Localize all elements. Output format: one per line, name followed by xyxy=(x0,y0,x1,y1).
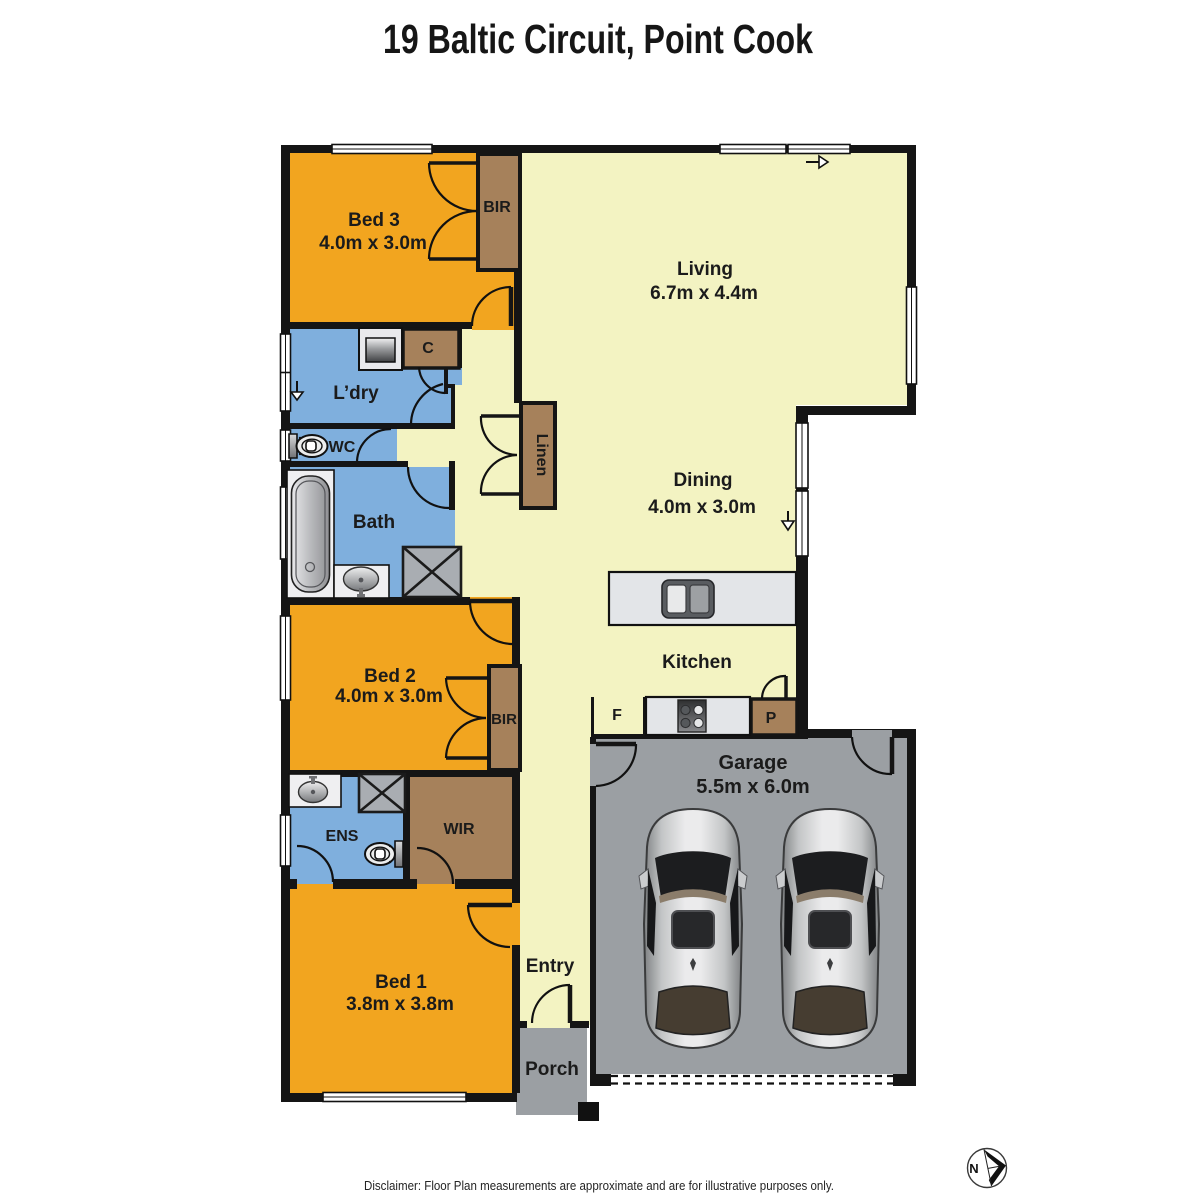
svg-text:Bath: Bath xyxy=(353,512,395,533)
svg-text:C: C xyxy=(422,340,434,357)
svg-text:Entry: Entry xyxy=(526,956,575,977)
svg-text:Linen: Linen xyxy=(533,434,550,477)
svg-text:N: N xyxy=(969,1161,978,1176)
svg-text:Bed 1: Bed 1 xyxy=(375,972,427,993)
svg-text:Dining: Dining xyxy=(673,470,732,491)
svg-text:Garage: Garage xyxy=(719,752,788,774)
svg-text:Kitchen: Kitchen xyxy=(662,652,732,673)
svg-text:ENS: ENS xyxy=(326,828,359,845)
svg-text:4.0m x 3.0m: 4.0m x 3.0m xyxy=(335,686,443,707)
svg-text:6.7m x 4.4m: 6.7m x 4.4m xyxy=(650,283,758,304)
svg-text:L’dry: L’dry xyxy=(333,383,379,404)
svg-text:5.5m x 6.0m: 5.5m x 6.0m xyxy=(696,776,809,798)
svg-text:WC: WC xyxy=(329,439,356,456)
svg-text:WIR: WIR xyxy=(443,821,475,838)
svg-text:3.8m x 3.8m: 3.8m x 3.8m xyxy=(346,994,454,1015)
svg-text:BIR: BIR xyxy=(483,199,511,216)
svg-text:Bed 2: Bed 2 xyxy=(364,666,416,687)
svg-text:4.0m x 3.0m: 4.0m x 3.0m xyxy=(648,497,756,518)
svg-text:Disclaimer: Floor Plan measure: Disclaimer: Floor Plan measurements are … xyxy=(364,1178,834,1193)
svg-text:BIR: BIR xyxy=(491,711,517,728)
svg-text:Bed 3: Bed 3 xyxy=(348,210,400,231)
svg-text:4.0m x 3.0m: 4.0m x 3.0m xyxy=(319,233,427,254)
svg-text:19 Baltic Circuit, Point Cook: 19 Baltic Circuit, Point Cook xyxy=(383,16,813,62)
svg-text:Living: Living xyxy=(677,259,733,280)
svg-text:P: P xyxy=(766,710,777,727)
svg-text:Porch: Porch xyxy=(525,1059,579,1080)
svg-text:F: F xyxy=(612,707,622,724)
